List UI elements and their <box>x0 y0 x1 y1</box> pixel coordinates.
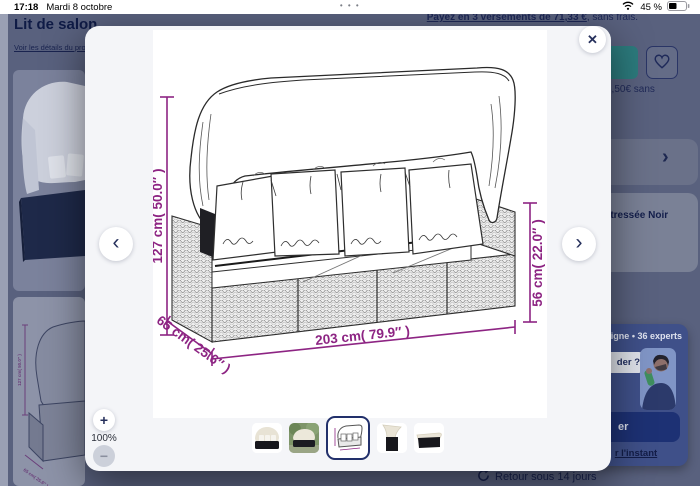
thumbnail-daybed-garden[interactable] <box>289 423 319 453</box>
page-title: Lit de salon <box>14 16 97 33</box>
thumbnail-selected-frame <box>326 416 370 460</box>
thumbnail-dimensions-drawing[interactable] <box>331 421 365 455</box>
return-arrows-icon <box>477 469 490 485</box>
thumbnail-daybed-front[interactable] <box>252 423 282 453</box>
wishlist-button[interactable] <box>646 46 678 79</box>
thumbnail-daybed-folded[interactable] <box>414 423 444 453</box>
returns-text: Retour sous 14 jours <box>495 471 597 483</box>
battery-icon <box>667 1 690 14</box>
gallery-photo-card[interactable] <box>13 70 85 291</box>
clock: 17:18 <box>14 2 38 13</box>
status-bar: 17:18 Mardi 8 octobre • • • 45 % <box>0 0 700 14</box>
multitask-handle[interactable]: • • • <box>340 1 360 10</box>
variant-label: e tressée Noir <box>602 210 668 221</box>
returns-row: Retour sous 14 jours <box>477 469 597 485</box>
thumbnail-strip <box>85 416 611 460</box>
dimensions-drawing: 127 cm( 50.0″ ) 56 cm( 22.0″ ) 203 cm( 7… <box>153 30 547 418</box>
product-image-stage[interactable]: 127 cm( 50.0″ ) 56 cm( 22.0″ ) 203 cm( 7… <box>153 30 547 418</box>
support-status: n ligne • 36 experts <box>600 331 682 341</box>
product-details-link[interactable]: Voir les détails du pro <box>14 43 86 52</box>
close-icon[interactable]: ✕ <box>579 26 606 53</box>
screen: 17:18 Mardi 8 octobre • • • 45 % Lit de … <box>0 0 700 486</box>
image-lightbox-modal: 127 cm( 50.0″ ) 56 cm( 22.0″ ) 203 cm( 7… <box>85 26 611 471</box>
prev-image-button[interactable]: ‹ <box>99 227 133 261</box>
chevron-right-icon[interactable]: › <box>662 146 669 169</box>
next-image-button[interactable]: › <box>562 227 596 261</box>
gallery-drawing-card[interactable]: 127 cm( 50.0″ ) 65 cm( 25.6″ ) <box>13 297 85 486</box>
svg-text:127 cm( 50.0″ ): 127 cm( 50.0″ ) <box>17 354 22 386</box>
battery-percent: 45 % <box>640 2 662 13</box>
support-agent-avatar <box>640 348 676 410</box>
page-left-edge <box>0 14 8 486</box>
height-dimension-label: 127 cm( 50.0″ ) <box>153 168 165 263</box>
thumbnail-canopy-detail[interactable] <box>377 423 407 453</box>
status-date: Mardi 8 octobre <box>46 2 112 13</box>
backrest-dimension-label: 56 cm( 22.0″ ) <box>530 219 545 307</box>
price-fragment: 3,50€ sans <box>606 84 655 95</box>
heart-icon <box>653 53 671 73</box>
wifi-icon <box>622 1 634 13</box>
svg-text:65 cm( 25.6″ ): 65 cm( 25.6″ ) <box>22 467 49 486</box>
